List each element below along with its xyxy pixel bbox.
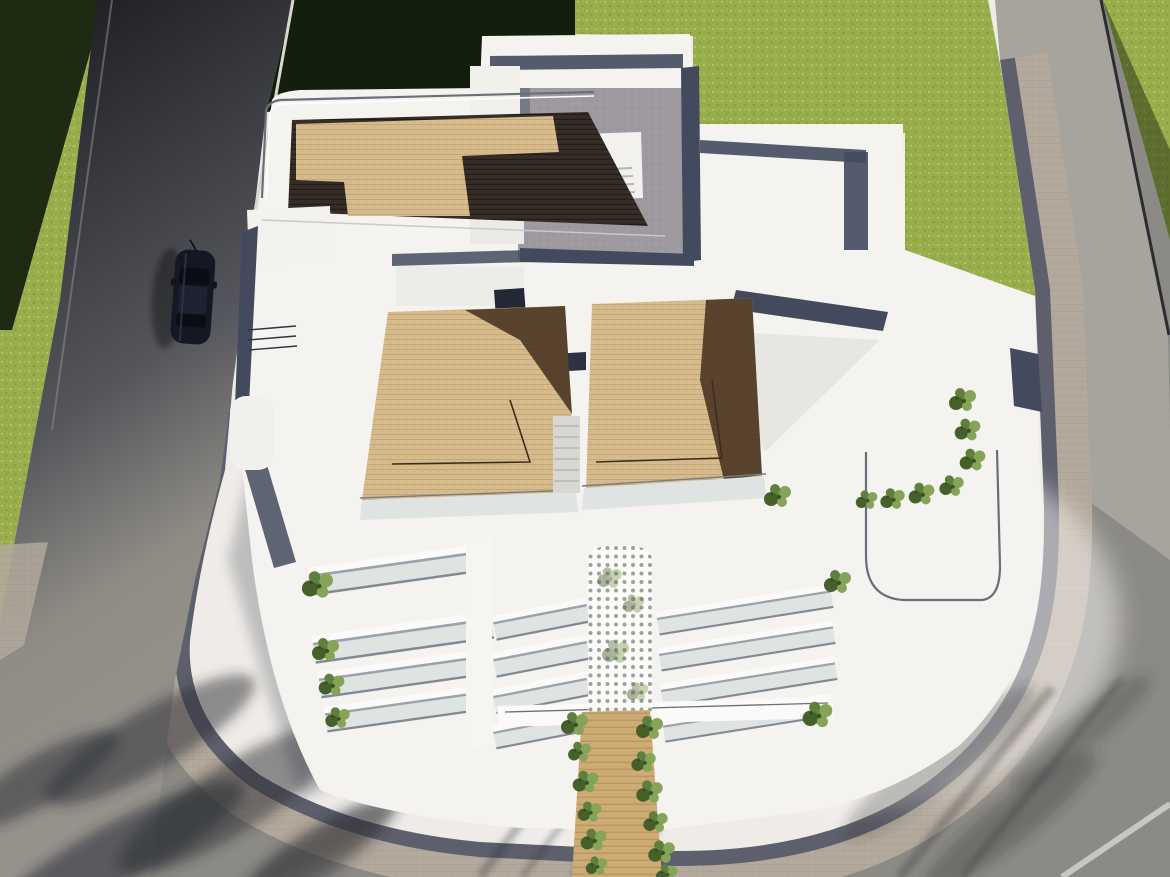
- lattice-screen: [588, 545, 652, 718]
- courtyard-wall-shadow-right: [681, 66, 701, 262]
- aerial-render-scene: [0, 0, 1170, 877]
- car-mirror-left: [171, 278, 176, 285]
- terrace-bulkhead: [247, 206, 332, 266]
- main-decks: [360, 298, 766, 520]
- car-mirror-right: [212, 281, 217, 288]
- tier-divider-wall: [466, 535, 492, 748]
- wing-shadow-right: [844, 152, 868, 250]
- curved-wall: [230, 396, 274, 470]
- wing-shadow-east: [1010, 348, 1042, 412]
- render-canvas: [0, 0, 1170, 877]
